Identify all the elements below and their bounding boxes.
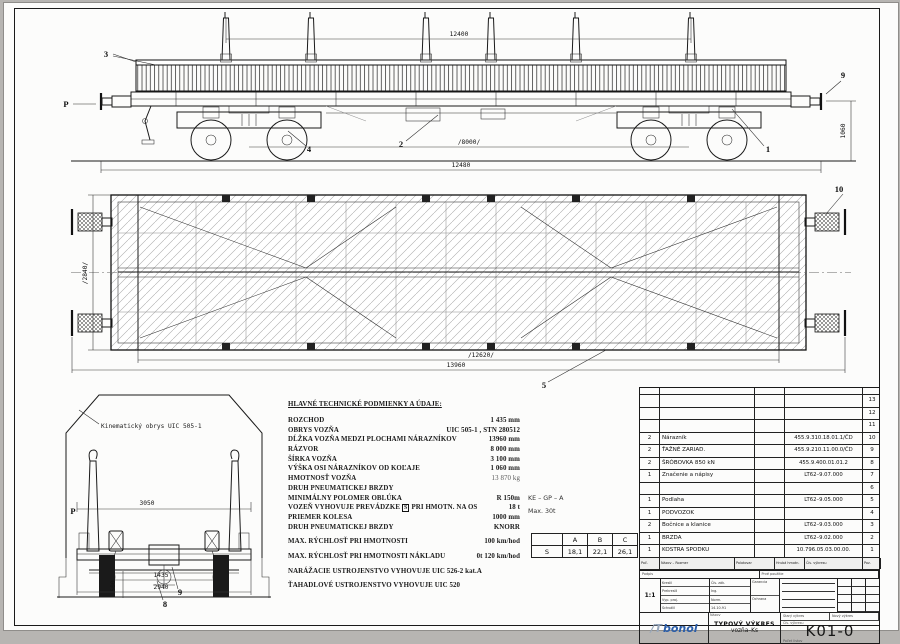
logo-mark: /T [650, 622, 662, 635]
dim-1060: 1060 [840, 123, 847, 138]
callout-10: 10 [835, 184, 844, 194]
logo-text: bonol [663, 622, 698, 635]
dim-2940: 2940 [154, 584, 169, 591]
dim-500: 500 [110, 580, 117, 591]
end-view-drawing: Kinematický obrys UIC 505-1 [49, 381, 289, 629]
parts-row: 2ŤAŽNÉ ZARIAD.455.9.210.11.00.0/ČD9 [640, 445, 879, 458]
callout-9-end: 9 [178, 587, 182, 597]
brake-max-load: Max. 30t [528, 505, 563, 518]
callout-2: 2 [399, 139, 403, 149]
dim-3050: 3050 [140, 500, 155, 507]
signature-labels: Kreslil Prekreslil Vyp. proj. Schválil [661, 579, 710, 612]
spec-row: VOZEŇ VYHOVUJE PREVÁDZKESPRI HMOTN. NA O… [288, 504, 520, 514]
spec-row: DRUH PNEUMATICKEJ BRZDY [288, 485, 520, 495]
spec-row: ŤAHADLOVÉ USTROJENSTVO VYHOVUJE UIC 520 [288, 582, 520, 592]
load-table-header-row: A B C [532, 534, 638, 546]
spec-row: MAX. RÝCHLOSŤ PRI HMOTNOSTI NÁKLADU0t 12… [288, 553, 520, 563]
parts-row: 2Nárazník455.9.310.18.01.1/ČD10 [640, 433, 879, 446]
callout-3: 3 [104, 49, 108, 59]
dim-13960: 13960 [447, 362, 466, 369]
marker-p-end: P [70, 506, 75, 516]
parts-row: 1KOSTRA SPODKU10.796.05.03.00.00.1 [640, 545, 879, 558]
drawing-title: TYPOVÝ VÝKRES [709, 621, 780, 628]
title-block-strip: Podpis Prvé použitie [640, 571, 879, 579]
callout-4: 4 [307, 144, 312, 154]
parts-row: 1PODVOZOK4 [640, 508, 879, 521]
callout-9-side: 9 [841, 70, 845, 80]
scale-cell: 1:1 [640, 579, 661, 612]
title-block: Podpis Prvé použitie 1:1 Kreslil Prekres… [639, 571, 880, 644]
brake-type: KE – GP – A [528, 492, 563, 505]
spec-row: MAX. RÝCHLOSŤ PRI HMOTNOSTI100 km/hod [288, 538, 520, 548]
side-dimensions: 12400 /8000/ 12480 1060 [101, 18, 856, 173]
parts-row: 1PodlahaLT62–9.05.0005 [640, 495, 879, 508]
dim-2840: /2840/ [82, 262, 89, 285]
callout-1: 1 [766, 144, 770, 154]
callout-8: 8 [163, 599, 167, 609]
gauge-label: Kinematický obrys UIC 505-1 [101, 422, 202, 430]
parts-row: 13 [640, 395, 879, 408]
buffer-right-side [791, 93, 821, 110]
dim-8000: /8000/ [458, 139, 481, 146]
parts-row: 11 [640, 420, 879, 433]
parts-and-title-block: 13 12 11 2Nárazník455.9.310.18.01.1/ČD10… [639, 387, 880, 644]
parts-list: 13 12 11 2Nárazník455.9.310.18.01.1/ČD10… [639, 387, 880, 571]
spec-row: ŠÍRKA VOZŇA3 100 mm [288, 456, 520, 466]
parts-row: 1BRZDALT62–9.02.0002 [640, 533, 879, 546]
spec-row: DĹŽKA VOZŇA MEDZI PLOCHAMI NÁRAZNÍKOV139… [288, 436, 520, 446]
parts-row: 2Bočnice a klaniceLT62–9.03.0003 [640, 520, 879, 533]
parts-row: 2ŠRÓBOVKA 850 kN455.9.400.01.01.28 [640, 458, 879, 471]
dim-12400: 12400 [450, 31, 469, 38]
title-block-stamp: 1:1 Kreslil Prekreslil Vyp. proj. Schvál… [640, 579, 879, 613]
signature-values: Čís. zák. Ing. Norm. 14.10.91 [710, 579, 751, 612]
drawing-number-cell: Starý výkres Nový výkres Čís. výkresu K0… [781, 613, 879, 644]
technical-specs: HLAVNÉ TECHNICKÉ PODMIENKY A ÚDAJE: ROZC… [288, 401, 520, 592]
guarantee-cells: Garancia Ochrana [751, 579, 780, 612]
brake-type-note: KE – GP – A Max. 30t [528, 492, 563, 518]
parts-row: 1Značenie a nápisyLT62–9.07.0007 [640, 470, 879, 483]
boxed-s-symbol: S [402, 504, 409, 512]
marker-p-side: P [63, 99, 68, 109]
dim-1435: 1435 [154, 572, 169, 579]
load-table-value-row: S 18,1 22,1 26,1 [532, 546, 638, 558]
spec-row: PRIEMER KOLESA1000 mm [288, 514, 520, 524]
floor-plan [71, 195, 851, 350]
buffer-left-side [101, 93, 131, 110]
spec-row: ROZCHOD1 435 mm [288, 417, 520, 427]
spec-row: NARÁŽACIE USTROJENSTVO VYHOVUJE UIC 526-… [288, 568, 520, 578]
plan-view-drawing: /2840/ /12620/ 13960 5 10 [56, 177, 868, 391]
drawing-sheet: 12400 /8000/ 12480 1060 3 P 4 2 1 9 [3, 2, 899, 631]
spec-row: RÁZVOR8 000 mm [288, 446, 520, 456]
drawing-title-cell: Názov TYPOVÝ VÝKRES vozňa–Ks [709, 613, 781, 644]
side-view-drawing: 12400 /8000/ 12480 1060 3 P 4 2 1 9 [56, 9, 868, 179]
spec-row: HMOTNOSŤ VOZŇA13 870 kg [288, 475, 520, 485]
dim-12620: /12620/ [468, 352, 494, 359]
drawing-sheet-page: { "sheet": { "number_label": "Čís. výkre… [0, 0, 900, 631]
underframe-gear [326, 106, 616, 121]
wagon-body-side [131, 60, 791, 106]
handbrake-lever [142, 106, 154, 144]
spec-row: DRUH PNEUMATICKEJ BRZDYKNORR [288, 524, 520, 534]
callout-5: 5 [542, 380, 546, 390]
company-logo: /Tbonol [640, 613, 709, 644]
parts-row: 12 [640, 408, 879, 421]
specs-title: HLAVNÉ TECHNICKÉ PODMIENKY A ÚDAJE: [288, 401, 520, 408]
title-block-bottom: /Tbonol Názov TYPOVÝ VÝKRES vozňa–Ks Sta… [640, 613, 879, 644]
load-limit-table: A B C S 18,1 22,1 26,1 [531, 533, 638, 558]
bogie-left [177, 106, 321, 160]
spec-row: OBRYS VOZŇAUIC 505-1 , STN 280512 [288, 427, 520, 437]
parts-list-header: Poč. kusov Názov – Rozmer Polotovar Hrub… [640, 558, 879, 570]
spec-row: VÝŠKA OSI NÁRAZNÍKOV OD KOĽAJE1 060 mm [288, 465, 520, 475]
spec-row: MINIMÁLNY POLOMER OBLÚKAR 150m [288, 495, 520, 505]
revision-grid [780, 579, 879, 612]
dim-12480: 12480 [452, 162, 471, 169]
parts-row-empty [640, 388, 879, 395]
parts-row: 6 [640, 483, 879, 496]
bogie-right [617, 106, 761, 160]
